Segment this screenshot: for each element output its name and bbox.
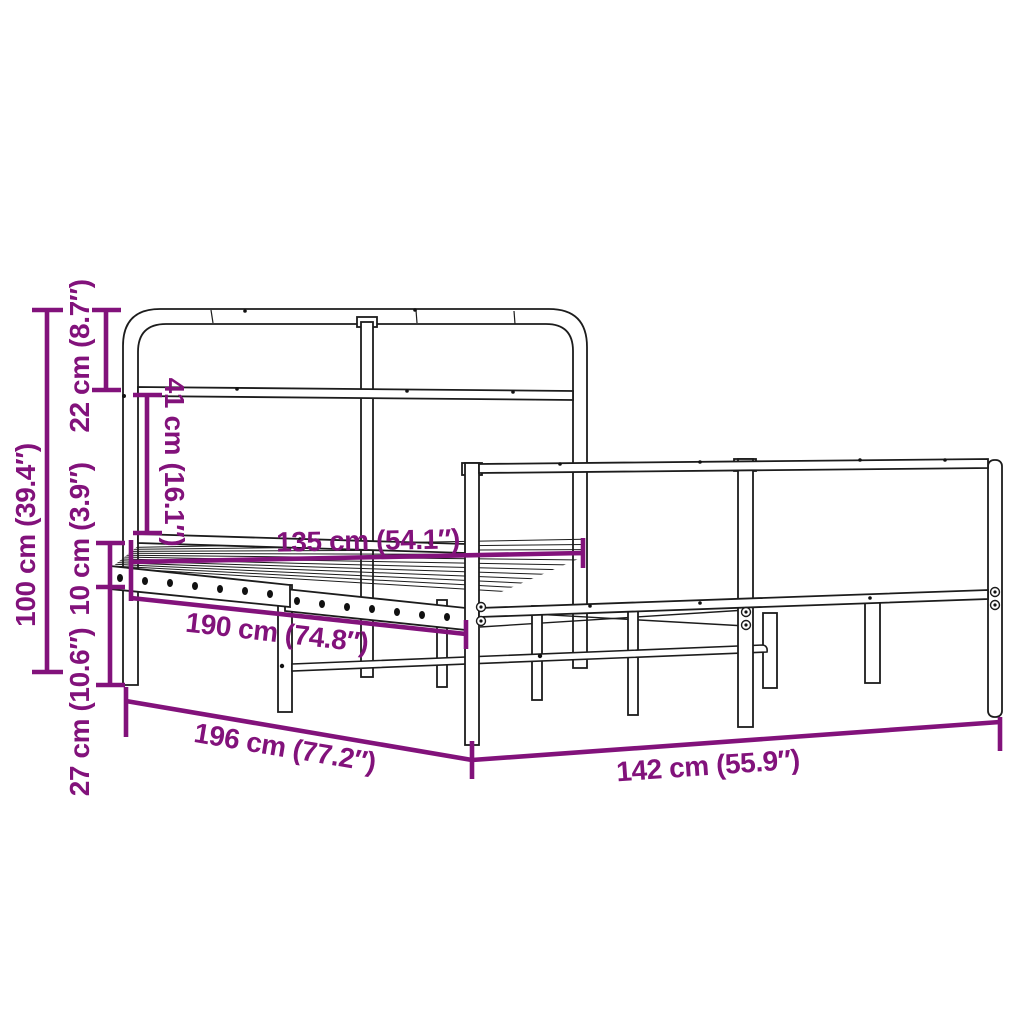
footboard-frame — [462, 459, 1002, 745]
dim-label-headboard-mid-gap: 41 cm (16.1″) — [158, 378, 190, 547]
dim-label-inner-length: 135 cm (54.1″) — [276, 523, 460, 558]
dimension-diagram: 100 cm (39.4″) 22 cm (8.7″) 41 cm (16.1″… — [0, 0, 1024, 1024]
dim-label-floor-clearance: 27 cm (10.6″) — [64, 628, 96, 797]
dim-label-rail-height: 10 cm (3.9″) — [64, 462, 96, 615]
bed-frame-drawing — [0, 0, 1024, 1024]
dim-label-total-height: 100 cm (39.4″) — [10, 443, 42, 627]
dim-label-headboard-top-section: 22 cm (8.7″) — [64, 279, 96, 432]
